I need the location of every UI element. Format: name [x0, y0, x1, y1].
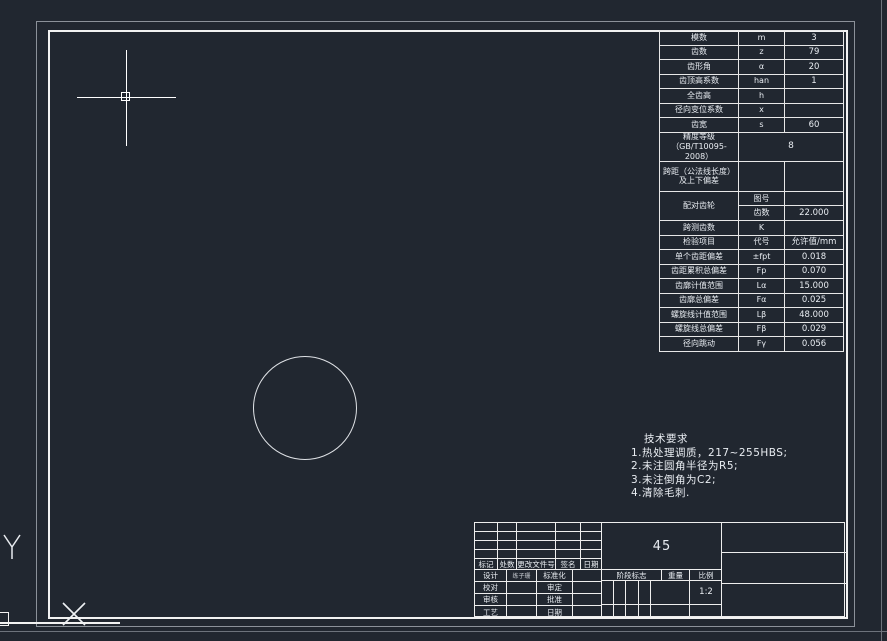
gear-table-row: 全齿高h	[660, 89, 843, 104]
gear-param-symbol: h	[739, 89, 785, 103]
gear-param-symbol: z	[739, 46, 785, 60]
revision-header-cell: 签名	[556, 559, 581, 570]
gear-param-name: 检验项目	[660, 236, 739, 250]
gear-table-row: 齿形角α20	[660, 60, 843, 75]
gear-table-row: 齿数z79	[660, 46, 843, 61]
gear-param-value: 60	[785, 118, 843, 132]
gear-table-row: 精度等级 （GB/T10095-2008）8	[660, 133, 843, 163]
gear-param-name: 齿廓计值范围	[660, 279, 739, 293]
ucs-x-marker-icon	[61, 601, 87, 627]
revision-header-cell: 标记	[475, 559, 498, 570]
gear-param-value: 允许值/mm	[785, 236, 843, 250]
window-bottom-edge	[0, 631, 887, 632]
gear-table-subrow: 图号	[739, 192, 843, 207]
drawing-name-cell	[722, 523, 846, 553]
revision-cell	[581, 541, 601, 550]
empty-cell	[573, 570, 601, 582]
gear-table-row: 检验项目代号允许值/mm	[660, 236, 843, 251]
revision-cell	[581, 550, 601, 559]
revision-row	[475, 550, 601, 559]
scale-cell: 1:2	[690, 581, 722, 618]
gear-param-name: 齿廓总偏差	[660, 294, 739, 308]
role-label: 日期	[537, 606, 573, 618]
empty-cell	[573, 606, 601, 618]
gear-param-symbol: ±fpt	[739, 250, 785, 264]
scale-value: 1:2	[699, 587, 713, 597]
role-label: 审核	[475, 594, 507, 606]
stage-mark-header: 阶段标志	[602, 570, 662, 581]
scale-header: 比例	[690, 570, 722, 581]
gear-table-row: 单个齿距偏差±fpt0.018	[660, 250, 843, 265]
revision-row	[475, 523, 601, 532]
technical-requirement-line: 4.清除毛刺.	[631, 487, 866, 501]
revision-cell	[556, 541, 581, 550]
gear-param-name: 全齿高	[660, 89, 739, 103]
gear-table-row: 齿顶高系数han1	[660, 75, 843, 90]
gear-param-value: 48.000	[785, 308, 843, 322]
revision-cell	[556, 532, 581, 541]
title-block-material-section: 45 阶段标志 重量 比例 1:2	[601, 523, 721, 618]
gear-param-subrows: 图号齿数22.000	[739, 192, 843, 221]
revision-header-row: 标记处数更改文件号签名日期	[475, 559, 601, 570]
stage-mark-cells	[602, 581, 662, 618]
revision-cell	[475, 550, 498, 559]
role-label: 校对	[475, 582, 507, 594]
revision-cell	[517, 541, 556, 550]
pickbox-cursor	[121, 92, 130, 101]
revision-cell	[475, 523, 498, 532]
technical-requirement-line: 3.未注倒角为C2;	[631, 474, 866, 488]
gear-param-name: 跨距（公法线长度） 及上下偏差	[660, 162, 739, 191]
revision-cell	[556, 550, 581, 559]
gear-table-row: 径向跳动Fγ0.056	[660, 337, 843, 351]
signature	[507, 606, 537, 618]
gear-param-value: 3	[785, 31, 843, 45]
gear-param-symbol: Fp	[739, 265, 785, 279]
gear-param-symbol: 齿数	[739, 206, 785, 220]
revision-cell	[498, 532, 517, 541]
technical-requirements-title: 技术要求	[644, 433, 866, 447]
gear-param-symbol: s	[739, 118, 785, 132]
gear-param-value: 0.070	[785, 265, 843, 279]
gear-param-symbol	[739, 162, 785, 191]
ucs-origin-box	[0, 612, 9, 626]
revision-cell	[498, 541, 517, 550]
technical-requirement-line: 1.热处理调质，217~255HBS;	[631, 447, 866, 461]
gear-param-symbol: 代号	[739, 236, 785, 250]
gear-param-value: 0.018	[785, 250, 843, 264]
gear-param-symbol: m	[739, 31, 785, 45]
gear-param-name: 齿顶高系数	[660, 75, 739, 89]
title-block-revision-section: 标记处数更改文件号签名日期 设计练子珊标准化校对审定审核批准工艺日期	[475, 523, 601, 618]
gear-param-name: 螺旋线计值范围	[660, 308, 739, 322]
technical-requirements[interactable]: 技术要求 1.热处理调质，217~255HBS;2.未注圆角半径为R5;3.未注…	[631, 433, 866, 501]
gear-table-row: 配对齿轮图号齿数22.000	[660, 192, 843, 222]
revision-cell	[475, 532, 498, 541]
empty-cell	[573, 594, 601, 606]
gear-param-value	[785, 192, 843, 206]
gear-parameter-table[interactable]: 模数m3齿数z79齿形角α20齿顶高系数han1全齿高h径向变位系数x齿宽s60…	[659, 30, 844, 352]
gear-table-row: 齿宽s60	[660, 118, 843, 133]
title-block-name-section	[721, 523, 846, 618]
gear-param-name: 径向变位系数	[660, 104, 739, 118]
gear-table-row: 跨距（公法线长度） 及上下偏差	[660, 162, 843, 192]
revision-header-cell: 更改文件号	[517, 559, 556, 570]
revision-cell	[498, 523, 517, 532]
gear-param-symbol: han	[739, 75, 785, 89]
revision-row	[475, 532, 601, 541]
signature-row: 审核批准	[475, 594, 601, 606]
gear-param-name: 螺旋线总偏差	[660, 323, 739, 337]
gear-param-value: 0.029	[785, 323, 843, 337]
signature-row: 校对审定	[475, 582, 601, 594]
divider	[602, 604, 722, 605]
gear-table-subrow: 齿数22.000	[739, 206, 843, 220]
gear-param-symbol: Fα	[739, 294, 785, 308]
gear-param-value: 0.056	[785, 337, 843, 351]
role-label: 标准化	[537, 570, 573, 582]
gear-param-name: 单个齿距偏差	[660, 250, 739, 264]
revision-cell	[517, 550, 556, 559]
gear-param-value	[785, 221, 843, 235]
gear-param-value	[785, 104, 843, 118]
gear-param-symbol: α	[739, 60, 785, 74]
gear-table-row: 齿距累积总偏差Fp0.070	[660, 265, 843, 280]
gear-param-symbol: K	[739, 221, 785, 235]
gear-param-symbol: Lβ	[739, 308, 785, 322]
gear-param-name: 配对齿轮	[660, 192, 739, 221]
gear-param-name: 精度等级 （GB/T10095-2008）	[660, 133, 739, 162]
gear-param-symbol: Fβ	[739, 323, 785, 337]
gear-param-value	[785, 162, 843, 191]
signature-row: 工艺日期	[475, 606, 601, 618]
role-label: 设计	[475, 570, 507, 582]
signature	[507, 594, 537, 606]
gear-param-name: 模数	[660, 31, 739, 45]
revision-header-cell: 日期	[581, 559, 601, 570]
gear-table-row: 螺旋线计值范围Lβ48.000	[660, 308, 843, 323]
gear-param-value: 20	[785, 60, 843, 74]
signature-row: 设计练子珊标准化	[475, 570, 601, 582]
gear-param-symbol: 图号	[739, 192, 785, 206]
gear-param-name: 齿距累积总偏差	[660, 265, 739, 279]
gear-param-symbol: Fγ	[739, 337, 785, 351]
gear-param-value: 15.000	[785, 279, 843, 293]
drawing-extra-cell	[722, 584, 846, 618]
gear-table-row: 齿廓总偏差Fα0.025	[660, 294, 843, 309]
gear-param-value: 1	[785, 75, 843, 89]
gear-param-value: 8	[739, 133, 843, 162]
revision-cell	[517, 532, 556, 541]
empty-cell	[573, 582, 601, 594]
gear-param-value	[785, 89, 843, 103]
gear-table-row: 径向变位系数x	[660, 104, 843, 119]
ucs-y-axis-icon	[0, 532, 24, 560]
gear-table-row: 螺旋线总偏差Fβ0.029	[660, 323, 843, 338]
cad-model-space[interactable]: 模数m3齿数z79齿形角α20齿顶高系数han1全齿高h径向变位系数x齿宽s60…	[0, 0, 887, 641]
revision-cell	[581, 532, 601, 541]
gear-param-name: 齿宽	[660, 118, 739, 132]
gear-param-symbol: x	[739, 104, 785, 118]
gear-table-row: 模数m3	[660, 31, 843, 46]
revision-cell	[517, 523, 556, 532]
revision-header-cell: 处数	[498, 559, 517, 570]
gear-param-name: 跨测齿数	[660, 221, 739, 235]
revision-row	[475, 541, 601, 550]
gear-param-value: 0.025	[785, 294, 843, 308]
circle-entity[interactable]	[253, 356, 357, 460]
gear-param-value: 79	[785, 46, 843, 60]
role-label: 工艺	[475, 606, 507, 618]
technical-requirement-line: 2.未注圆角半径为R5;	[631, 460, 866, 474]
window-right-edge	[881, 0, 882, 641]
weight-cell	[662, 581, 690, 618]
gear-param-symbol: Lα	[739, 279, 785, 293]
signature	[507, 582, 537, 594]
gear-param-value: 22.000	[785, 206, 843, 220]
material-label: 45	[602, 523, 722, 570]
ucs-x-axis-line	[0, 622, 120, 624]
weight-header: 重量	[662, 570, 690, 581]
gear-param-name: 径向跳动	[660, 337, 739, 351]
revision-cell	[581, 523, 601, 532]
drawing-number-cell	[722, 553, 846, 584]
gear-table-row: 跨测齿数K	[660, 221, 843, 236]
revision-cell	[475, 541, 498, 550]
gear-param-name: 齿形角	[660, 60, 739, 74]
gear-param-name: 齿数	[660, 46, 739, 60]
role-label: 审定	[537, 582, 573, 594]
role-label: 批准	[537, 594, 573, 606]
gear-table-row: 齿廓计值范围Lα15.000	[660, 279, 843, 294]
revision-cell	[556, 523, 581, 532]
revision-cell	[498, 550, 517, 559]
title-block[interactable]: 标记处数更改文件号签名日期 设计练子珊标准化校对审定审核批准工艺日期 45 阶段…	[474, 522, 845, 617]
signature: 练子珊	[507, 570, 537, 582]
